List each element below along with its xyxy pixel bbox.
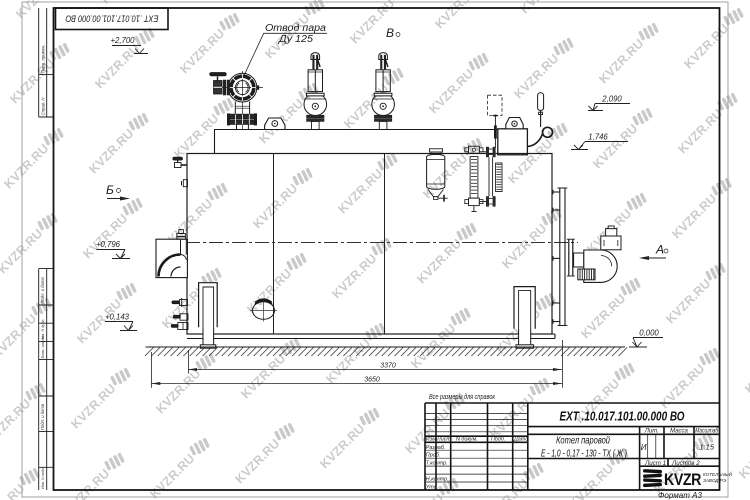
svg-text:1:15: 1:15	[699, 443, 714, 452]
svg-text:Формат А3: Формат А3	[658, 490, 702, 500]
svg-text:KVZR: KVZR	[664, 470, 701, 489]
svg-text:Подп. и дата: Подп. и дата	[40, 403, 45, 430]
svg-text:3650: 3650	[364, 377, 380, 384]
svg-text:+0,796: +0,796	[96, 240, 121, 249]
svg-text:Подп. и дата: Подп. и дата	[40, 277, 45, 304]
svg-text:И: И	[641, 443, 647, 452]
svg-text:Справ. N: Справ. N	[41, 97, 46, 116]
svg-text:Перв. примен.: Перв. примен.	[41, 44, 46, 73]
svg-text:Лит.: Лит.	[644, 429, 659, 435]
svg-text:Лист 1: Лист 1	[644, 460, 666, 467]
svg-text:Разраб.: Разраб.	[426, 445, 446, 451]
svg-text:Котел паровой: Котел паровой	[556, 436, 610, 447]
svg-text:Дата: Дата	[513, 437, 528, 443]
svg-text:Масштаб: Масштаб	[695, 429, 719, 435]
svg-text:+2,700: +2,700	[110, 36, 135, 45]
svg-text:+0,143: +0,143	[105, 313, 130, 322]
svg-text:Ду 125: Ду 125	[278, 34, 314, 45]
svg-text:3370: 3370	[380, 363, 396, 370]
svg-text:Б: Б	[106, 183, 114, 197]
svg-text:N докум.: N докум.	[456, 437, 478, 443]
svg-text:Отвод пара: Отвод пара	[265, 23, 326, 34]
svg-text:А: А	[655, 243, 664, 257]
svg-text:Лист: Лист	[436, 437, 451, 443]
svg-text:КОТЕЛЬНЫЙ: КОТЕЛЬНЫЙ	[703, 470, 733, 477]
svg-text:Т.контр.: Т.контр.	[426, 461, 448, 467]
svg-text:Проб.: Проб.	[426, 453, 440, 459]
svg-text:Утв.: Утв.	[425, 484, 438, 490]
svg-text:ЗАВОД РЭ: ЗАВОД РЭ	[703, 478, 727, 483]
svg-text:ЕХТ .10.017.101.00.000 ВО: ЕХТ .10.017.101.00.000 ВО	[65, 14, 158, 24]
svg-text:Взам. инв. N: Взам. инв. N	[41, 336, 45, 358]
svg-text:Н.контр.: Н.контр.	[426, 476, 449, 482]
svg-text:ЕХТ .10.017.101.00.000 ВО: ЕХТ .10.017.101.00.000 ВО	[560, 409, 685, 424]
svg-text:В: В	[386, 26, 394, 40]
svg-text:2,090: 2,090	[601, 94, 622, 103]
svg-text:1,746: 1,746	[588, 133, 608, 142]
svg-text:0,000: 0,000	[639, 329, 659, 338]
svg-text:Изм.: Изм.	[426, 437, 438, 443]
svg-text:Е - 1,0 - 0,17 - 130 - ТХ ( Ж: Е - 1,0 - 0,17 - 130 - ТХ ( Ж )	[541, 449, 627, 460]
svg-text:Все размеры для справок: Все размеры для справок	[429, 392, 495, 401]
svg-text:Листов 2: Листов 2	[671, 460, 700, 467]
svg-text:Масса: Масса	[670, 429, 688, 435]
svg-text:Инв. N подл.: Инв. N подл.	[41, 467, 45, 489]
svg-text:Подп.: Подп.	[491, 437, 505, 443]
